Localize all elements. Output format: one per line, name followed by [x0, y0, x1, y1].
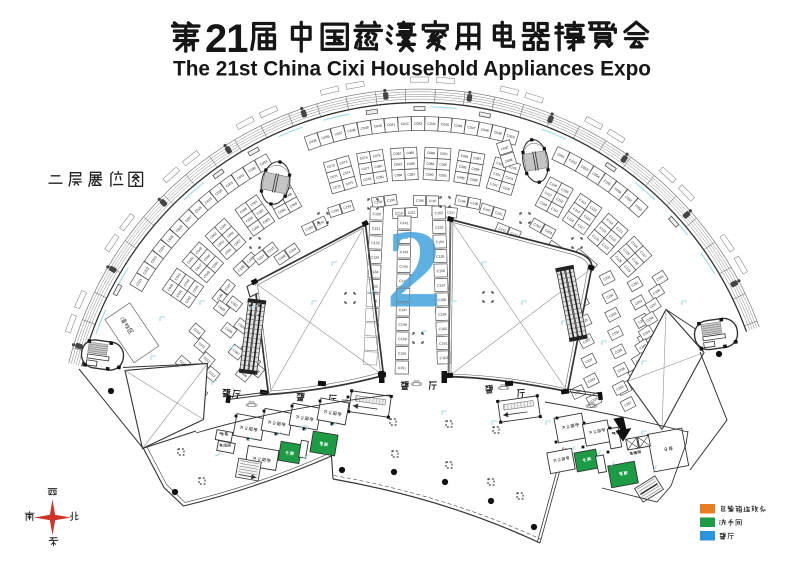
svg-text:C161: C161 [439, 341, 448, 345]
svg-text:C149: C149 [398, 337, 406, 341]
svg-text:C083: C083 [394, 162, 402, 166]
svg-text:C217: C217 [447, 210, 455, 215]
svg-text:C150: C150 [398, 352, 406, 356]
svg-text:2: 2 [386, 208, 442, 332]
svg-text:C045: C045 [441, 122, 450, 127]
svg-text:C132: C132 [371, 241, 380, 245]
svg-text:C162: C162 [440, 356, 449, 360]
svg-text:C151: C151 [398, 366, 406, 370]
svg-text:C084: C084 [394, 173, 402, 177]
svg-text:C041: C041 [387, 122, 396, 127]
svg-text:C042: C042 [401, 122, 409, 126]
svg-text:C092: C092 [439, 162, 447, 166]
svg-text:C087: C087 [407, 172, 415, 176]
svg-text:C044: C044 [427, 122, 435, 126]
svg-text:C196: C196 [416, 199, 424, 203]
svg-text:C043: C043 [414, 122, 422, 126]
svg-text:C133: C133 [371, 255, 380, 259]
svg-text:The 21st China Cixi Household: The 21st China Cixi Household Appliances… [173, 57, 651, 81]
svg-text:C088: C088 [427, 151, 435, 155]
svg-text:C090: C090 [426, 172, 434, 176]
svg-text:C089: C089 [426, 162, 434, 166]
svg-text:C085: C085 [406, 151, 414, 155]
svg-text:C093: C093 [439, 173, 447, 177]
svg-text:21: 21 [205, 17, 248, 61]
svg-text:C131: C131 [372, 226, 381, 230]
svg-text:C197: C197 [429, 199, 437, 203]
svg-text:C130: C130 [372, 212, 381, 216]
svg-text:C082: C082 [393, 152, 401, 156]
svg-text:C091: C091 [440, 152, 448, 156]
svg-text:C086: C086 [407, 162, 415, 166]
